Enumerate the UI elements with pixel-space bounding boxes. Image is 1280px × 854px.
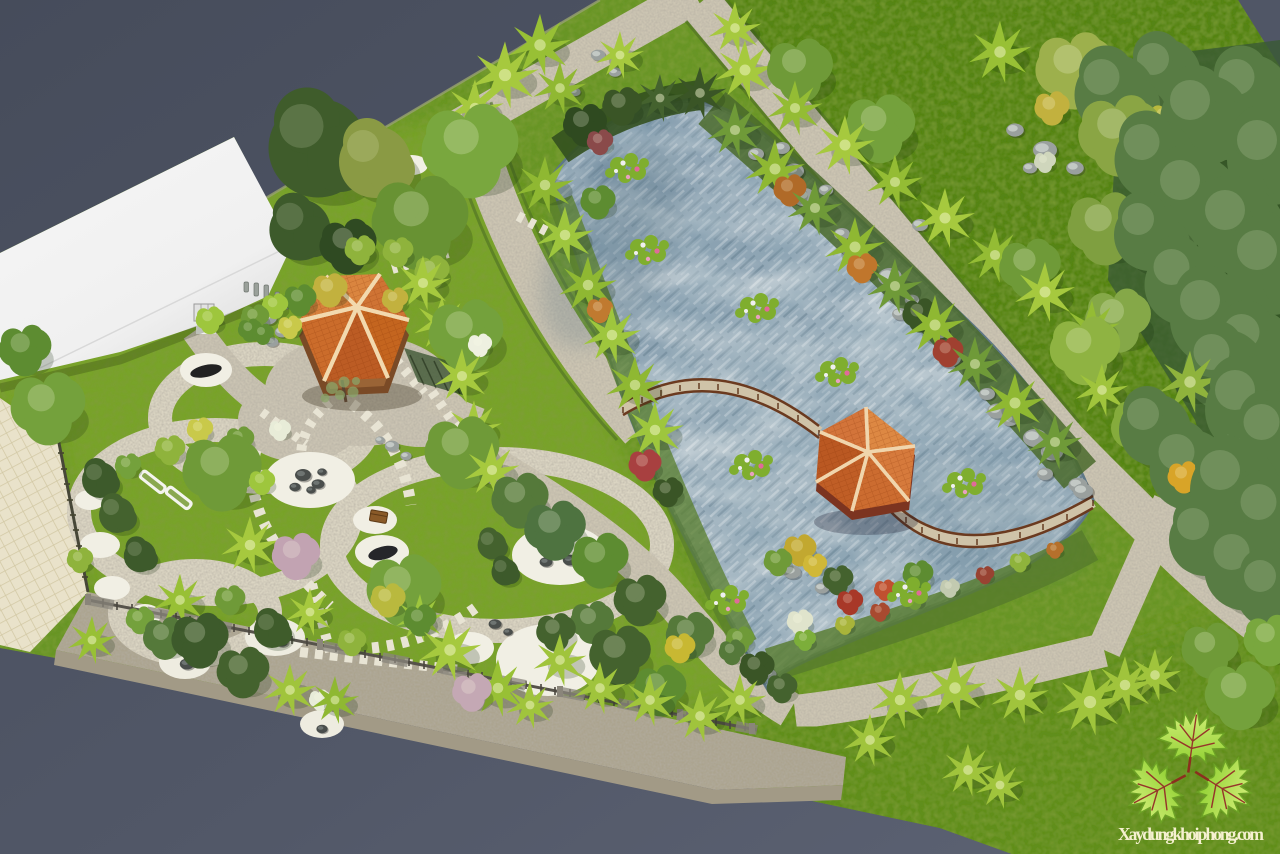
svg-text:Xaydungkhoiphong.com: Xaydungkhoiphong.com [1118,824,1264,844]
